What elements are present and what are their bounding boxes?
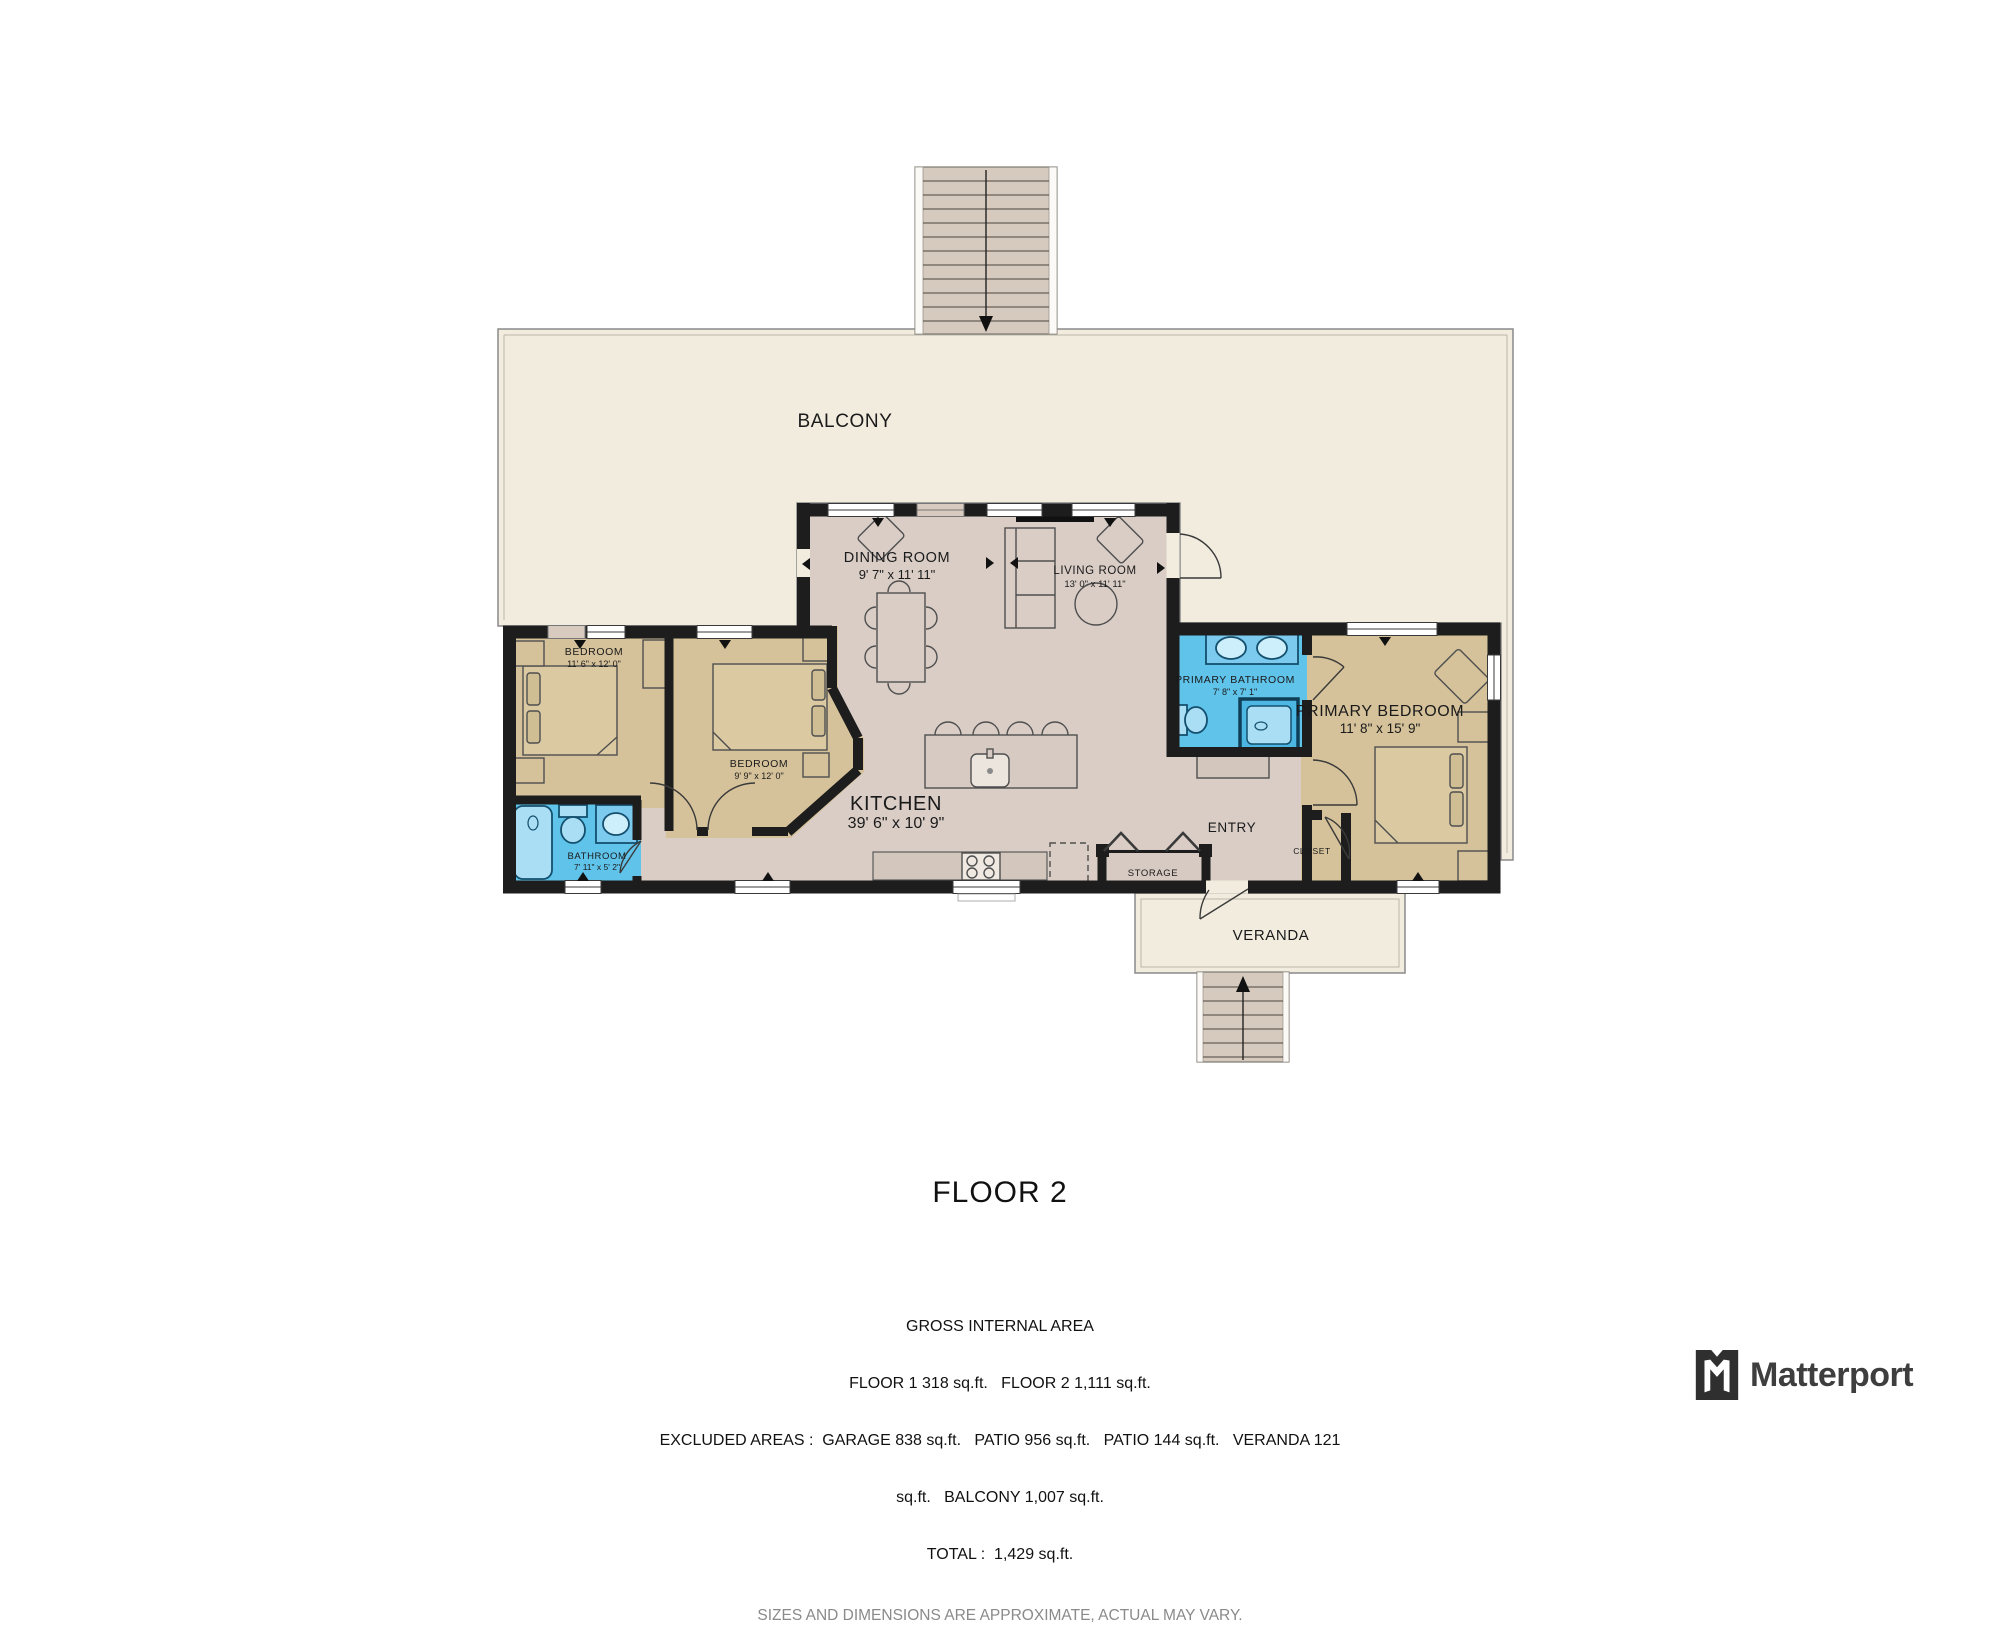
area-summary: GROSS INTERNAL AREA FLOOR 1 318 sq.ft. F… <box>0 1279 2000 1644</box>
wardrobe <box>643 640 667 688</box>
primary-bedroom-label: PRIMARY BEDROOM <box>1296 703 1464 720</box>
sink <box>1257 637 1287 659</box>
nightstand <box>514 641 544 666</box>
veranda-stairs <box>1197 972 1289 1062</box>
kitchen-counter <box>873 852 1047 880</box>
nightstand <box>514 758 544 783</box>
sink <box>1216 637 1246 659</box>
window <box>987 504 1042 517</box>
entry-dresser <box>1197 754 1269 778</box>
bedroom-left-label: BEDROOM <box>565 646 623 658</box>
sliding-door <box>917 504 964 517</box>
closet-label: CLOSET <box>1293 846 1331 856</box>
kitchen-label: KITCHEN <box>850 793 942 815</box>
window <box>1072 504 1135 517</box>
living-room-dims: 13' 0" x 11' 11" <box>1064 579 1125 590</box>
bed-middle <box>713 664 827 750</box>
matterport-logo: Matterport <box>1694 1347 1984 1403</box>
summary-line-4: sq.ft. BALCONY 1,007 sq.ft. <box>0 1488 2000 1507</box>
entry-label: ENTRY <box>1208 820 1257 835</box>
sliding-door <box>548 626 585 639</box>
storage-label: STORAGE <box>1128 868 1178 879</box>
toilet-bowl <box>561 817 585 843</box>
window <box>697 626 752 639</box>
toilet-bowl <box>1185 707 1207 733</box>
sofa <box>1005 528 1055 628</box>
window <box>953 881 1020 902</box>
summary-line-3: EXCLUDED AREAS : GARAGE 838 sq.ft. PATIO… <box>0 1431 2000 1450</box>
window <box>565 881 601 894</box>
primary-bathroom-label: PRIMARY BATHROOM <box>1175 674 1295 686</box>
nightstand <box>803 753 829 777</box>
nightstand <box>803 637 829 661</box>
primary-bathroom-dims: 7' 8" x 7' 1" <box>1213 687 1257 697</box>
balcony-stairs <box>915 167 1057 334</box>
bathtub <box>514 806 552 879</box>
window <box>1397 881 1439 894</box>
dining-room-dims: 9' 7" x 11' 11" <box>859 567 936 582</box>
primary-bedroom-dims: 11' 8" x 15' 9" <box>1340 721 1421 736</box>
shower-pan <box>1247 706 1291 744</box>
nightstand <box>1458 851 1490 881</box>
matterport-logo-text: Matterport <box>1750 1356 1913 1395</box>
bedroom-left-dims: 11' 6" x 12' 0" <box>567 659 621 669</box>
bedroom-middle-dims: 9' 9" x 12' 0" <box>734 771 783 781</box>
window <box>1347 623 1437 636</box>
window <box>828 504 894 517</box>
matterport-logo-icon <box>1694 1349 1740 1401</box>
living-room-label: LIVING ROOM <box>1053 565 1136 577</box>
window <box>587 626 625 639</box>
floor-title: FLOOR 2 <box>0 1176 2000 1210</box>
bathroom-dims: 7' 11" x 5' 2" <box>574 862 620 872</box>
sink <box>603 813 629 835</box>
window <box>735 881 790 894</box>
summary-line-1: GROSS INTERNAL AREA <box>0 1317 2000 1336</box>
summary-line-5: TOTAL : 1,429 sq.ft. <box>0 1545 2000 1564</box>
bedroom-middle-label: BEDROOM <box>730 758 788 770</box>
veranda-label: VERANDA <box>1233 927 1310 944</box>
window <box>1488 655 1501 700</box>
disclaimer: SIZES AND DIMENSIONS ARE APPROXIMATE, AC… <box>0 1606 2000 1625</box>
balcony-label: BALCONY <box>797 411 892 432</box>
dining-table <box>877 593 925 682</box>
bathroom-label: BATHROOM <box>568 851 627 862</box>
dining-room-label: DINING ROOM <box>844 550 951 566</box>
toilet-tank <box>559 805 587 817</box>
kitchen-dims: 39' 6" x 10' 9" <box>848 815 945 832</box>
